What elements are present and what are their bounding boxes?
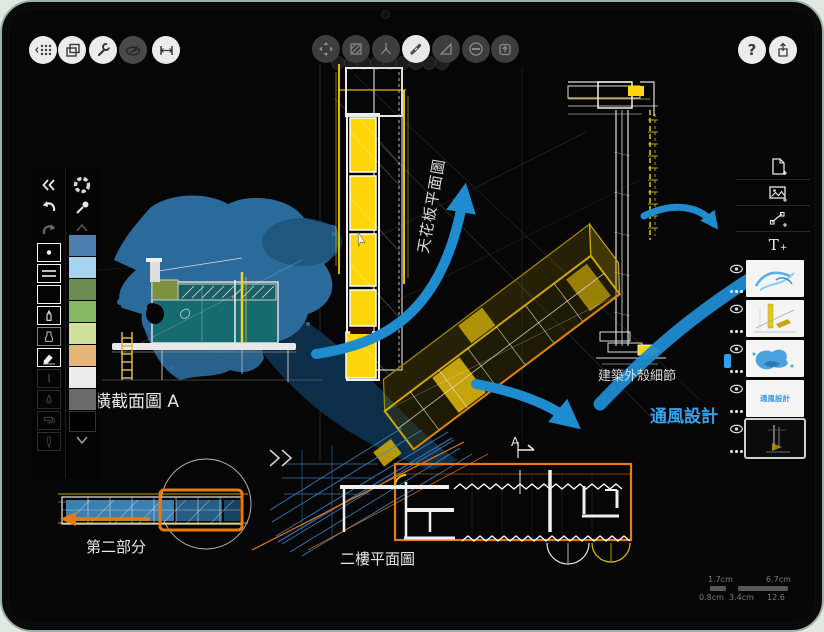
tool-pen[interactable] [37, 306, 61, 325]
navigator-button[interactable] [119, 36, 147, 64]
palette-up-button[interactable] [70, 219, 94, 235]
new-page-button[interactable] [748, 154, 808, 179]
text-tool-label: T [769, 236, 779, 254]
swatch-tan[interactable] [69, 345, 96, 366]
layer-row-sketch[interactable] [726, 300, 810, 337]
settings-button[interactable] [89, 36, 117, 64]
label-shell-detail: 建築外殼細節 [598, 369, 676, 384]
import-tool-button[interactable] [491, 35, 519, 63]
tool-paint-roller[interactable] [37, 411, 61, 430]
layer-controls [726, 300, 746, 337]
add-guide-button[interactable] [748, 206, 808, 231]
tool-marker[interactable] [37, 327, 61, 346]
circle-minus-icon [467, 40, 485, 58]
eye-icon[interactable] [729, 264, 744, 274]
swatch-blue[interactable] [69, 235, 96, 256]
background-thumb-art [746, 420, 804, 457]
layer-menu-icon[interactable] [730, 410, 743, 413]
label-ventilation: 通風設計 [650, 406, 718, 427]
swatch-black[interactable] [69, 411, 96, 432]
layer-row-wash[interactable] [726, 340, 810, 377]
help-label: ? [748, 41, 757, 59]
tool-dot-preset[interactable] [37, 243, 61, 262]
measure-icon [157, 41, 175, 59]
airbrush-icon [41, 434, 57, 450]
scale-bar-small [710, 586, 726, 591]
compass-icon [124, 41, 142, 59]
tool-fineliner[interactable] [37, 369, 61, 388]
layer-thumbnail[interactable] [746, 260, 804, 297]
layer-thumbnail[interactable]: 通風設計 [746, 380, 804, 417]
chevron-up-icon [73, 222, 91, 232]
tool-airbrush[interactable] [37, 432, 61, 451]
eyedropper-icon [73, 199, 91, 217]
pen-tool-button[interactable] [402, 35, 430, 63]
add-image-button[interactable] [748, 180, 808, 205]
redo-button[interactable] [37, 219, 61, 242]
app-screen: 橫截面圖 A 天花板平面圖 建築外殼細節 通風設計 第二部分 二樓平面圖 A ? [10, 10, 814, 622]
nib-lines-icon [377, 40, 395, 58]
transform-plus-icon [768, 209, 788, 229]
swatch-olive-green[interactable] [69, 279, 96, 300]
eye-icon[interactable] [729, 304, 744, 314]
plus-icon: + [780, 243, 788, 253]
label-second-floor-plan: 二樓平面圖 [340, 550, 415, 568]
swatch-pale-green[interactable] [69, 323, 96, 344]
pages-button[interactable] [58, 36, 86, 64]
pen-icon [41, 308, 57, 324]
tool-line-preset[interactable] [37, 264, 61, 283]
layer-menu-icon[interactable] [730, 290, 743, 293]
scale-value: 1.7cm [708, 575, 733, 584]
triangle-icon [437, 40, 455, 58]
layer-row-background[interactable] [726, 420, 810, 457]
grid-menu-button[interactable] [29, 36, 57, 64]
layer-row-arrows[interactable] [726, 260, 810, 297]
undo-button[interactable] [37, 196, 61, 219]
measure-button[interactable] [152, 36, 180, 64]
label-section-marker: A [511, 435, 520, 449]
layer-row-text[interactable]: 通風設計 [726, 380, 810, 417]
hatch-square-icon [347, 40, 365, 58]
brush-column [32, 168, 65, 478]
dot-icon [39, 245, 59, 260]
sketch-thumb-art [746, 300, 804, 337]
share-icon [774, 41, 792, 59]
double-line-icon [39, 266, 59, 281]
color-wheel-button[interactable] [70, 173, 94, 196]
swatch-green[interactable] [69, 301, 96, 322]
redo-arrow-icon [40, 223, 58, 238]
fill-tool-button[interactable] [342, 35, 370, 63]
chevrons-left-icon [41, 178, 57, 192]
eye-icon[interactable] [729, 424, 744, 434]
undo-arrow-icon [40, 200, 58, 215]
layer-thumbnail[interactable] [746, 420, 804, 457]
add-text-button[interactable]: T+ [748, 232, 808, 257]
marker-icon [41, 329, 57, 345]
tool-eraser[interactable] [37, 348, 61, 367]
layer-menu-icon[interactable] [730, 450, 743, 453]
scale-value: 0.8cm [699, 593, 724, 602]
tablet-device: 橫截面圖 A 天花板平面圖 建築外殼細節 通風設計 第二部分 二樓平面圖 A ? [0, 0, 824, 632]
layers-panel: T+ 通風設計 [726, 154, 810, 457]
eye-icon[interactable] [729, 344, 744, 354]
layer-menu-icon[interactable] [730, 330, 743, 333]
eyedropper-button[interactable] [70, 196, 94, 219]
layer-controls [726, 260, 746, 297]
fineliner-icon [41, 371, 57, 387]
collapse-panel-button[interactable] [37, 173, 61, 196]
wash-thumb-art [746, 340, 804, 377]
swatch-gray[interactable] [69, 389, 96, 410]
scale-value: 12.6 [767, 593, 785, 602]
drawing-canvas[interactable]: 橫截面圖 A 天花板平面圖 建築外殼細節 通風設計 第二部分 二樓平面圖 A [10, 10, 814, 622]
scale-value: 3.4cm [729, 593, 754, 602]
layer-thumbnail[interactable] [746, 300, 804, 337]
layer-thumbnail[interactable] [746, 340, 804, 377]
layer-menu-icon[interactable] [730, 370, 743, 373]
move-tool-button[interactable] [312, 35, 340, 63]
grid-icon [34, 41, 52, 59]
palette-down-button[interactable] [70, 433, 94, 447]
eye-icon[interactable] [729, 384, 744, 394]
eraser-tool-button[interactable] [462, 35, 490, 63]
share-button[interactable] [769, 36, 797, 64]
arrows-thumb-art [746, 260, 804, 297]
front-camera [381, 10, 390, 19]
eraser-icon [40, 350, 58, 366]
fountain-pen-icon [41, 392, 57, 408]
swatch-white[interactable] [69, 367, 96, 388]
tool-fountain-pen[interactable] [37, 390, 61, 409]
active-color-indicator [724, 354, 731, 368]
paint-roller-icon [41, 413, 57, 429]
move-arrows-icon [317, 40, 335, 58]
help-button[interactable]: ? [738, 36, 766, 64]
brush-panel [32, 168, 98, 478]
color-column [65, 168, 98, 478]
label-part-two: 第二部分 [86, 538, 146, 556]
pages-icon [63, 41, 81, 59]
shape-guide-tool-button[interactable] [432, 35, 460, 63]
label-ceiling-plan: 天花板平面圖 [414, 157, 448, 255]
tool-blank-preset[interactable] [37, 285, 61, 304]
swatch-light-blue[interactable] [69, 257, 96, 278]
label-cross-section: 橫截面圖 A [94, 392, 179, 412]
layer-controls [726, 380, 746, 417]
arrow-up-box-icon [496, 40, 514, 58]
color-wheel-icon [72, 175, 92, 195]
image-plus-icon [768, 183, 788, 203]
scale-value: 6.7cm [766, 575, 791, 584]
text-layer-preview: 通風設計 [760, 393, 790, 404]
page-plus-icon [768, 157, 788, 177]
wire-tool-button[interactable] [372, 35, 400, 63]
scale-bar-large [738, 586, 788, 591]
column-elevation-drawing [336, 64, 408, 380]
chevron-down-icon [73, 435, 91, 445]
layer-controls [726, 420, 746, 457]
marker-pen-icon [407, 40, 425, 58]
wrench-icon [94, 41, 112, 59]
